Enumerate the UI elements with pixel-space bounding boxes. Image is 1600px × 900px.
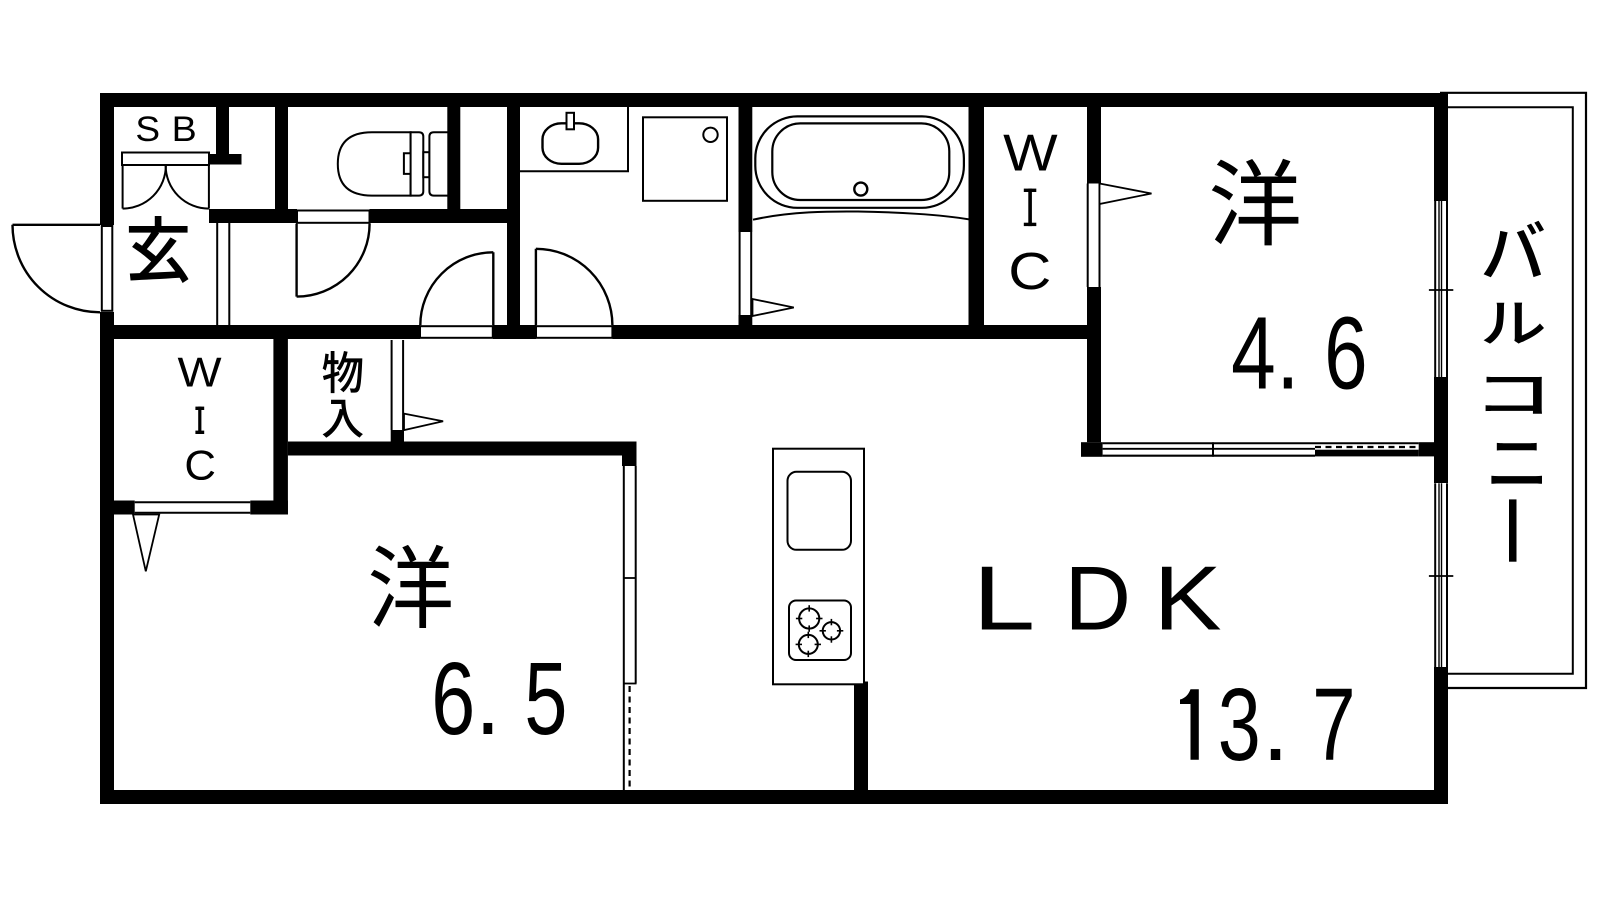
svg-text:.: . — [1276, 295, 1299, 410]
svg-text:D: D — [1064, 549, 1131, 650]
svg-text:5: 5 — [524, 641, 567, 756]
svg-text:6: 6 — [431, 641, 475, 756]
svg-text:K: K — [1154, 549, 1222, 650]
svg-text:C: C — [184, 442, 216, 489]
svg-text:L: L — [973, 549, 1036, 650]
svg-text:W: W — [178, 348, 222, 395]
svg-text:S: S — [135, 110, 160, 149]
svg-text:6: 6 — [1324, 295, 1367, 410]
svg-text:7: 7 — [1312, 667, 1356, 782]
svg-text:C: C — [1008, 243, 1051, 301]
svg-text:W: W — [1003, 125, 1058, 183]
svg-text:.: . — [475, 641, 501, 756]
svg-text:.: . — [1262, 667, 1290, 782]
svg-text:3: 3 — [1218, 667, 1261, 782]
svg-text:4: 4 — [1231, 295, 1276, 410]
svg-text:B: B — [172, 110, 197, 149]
